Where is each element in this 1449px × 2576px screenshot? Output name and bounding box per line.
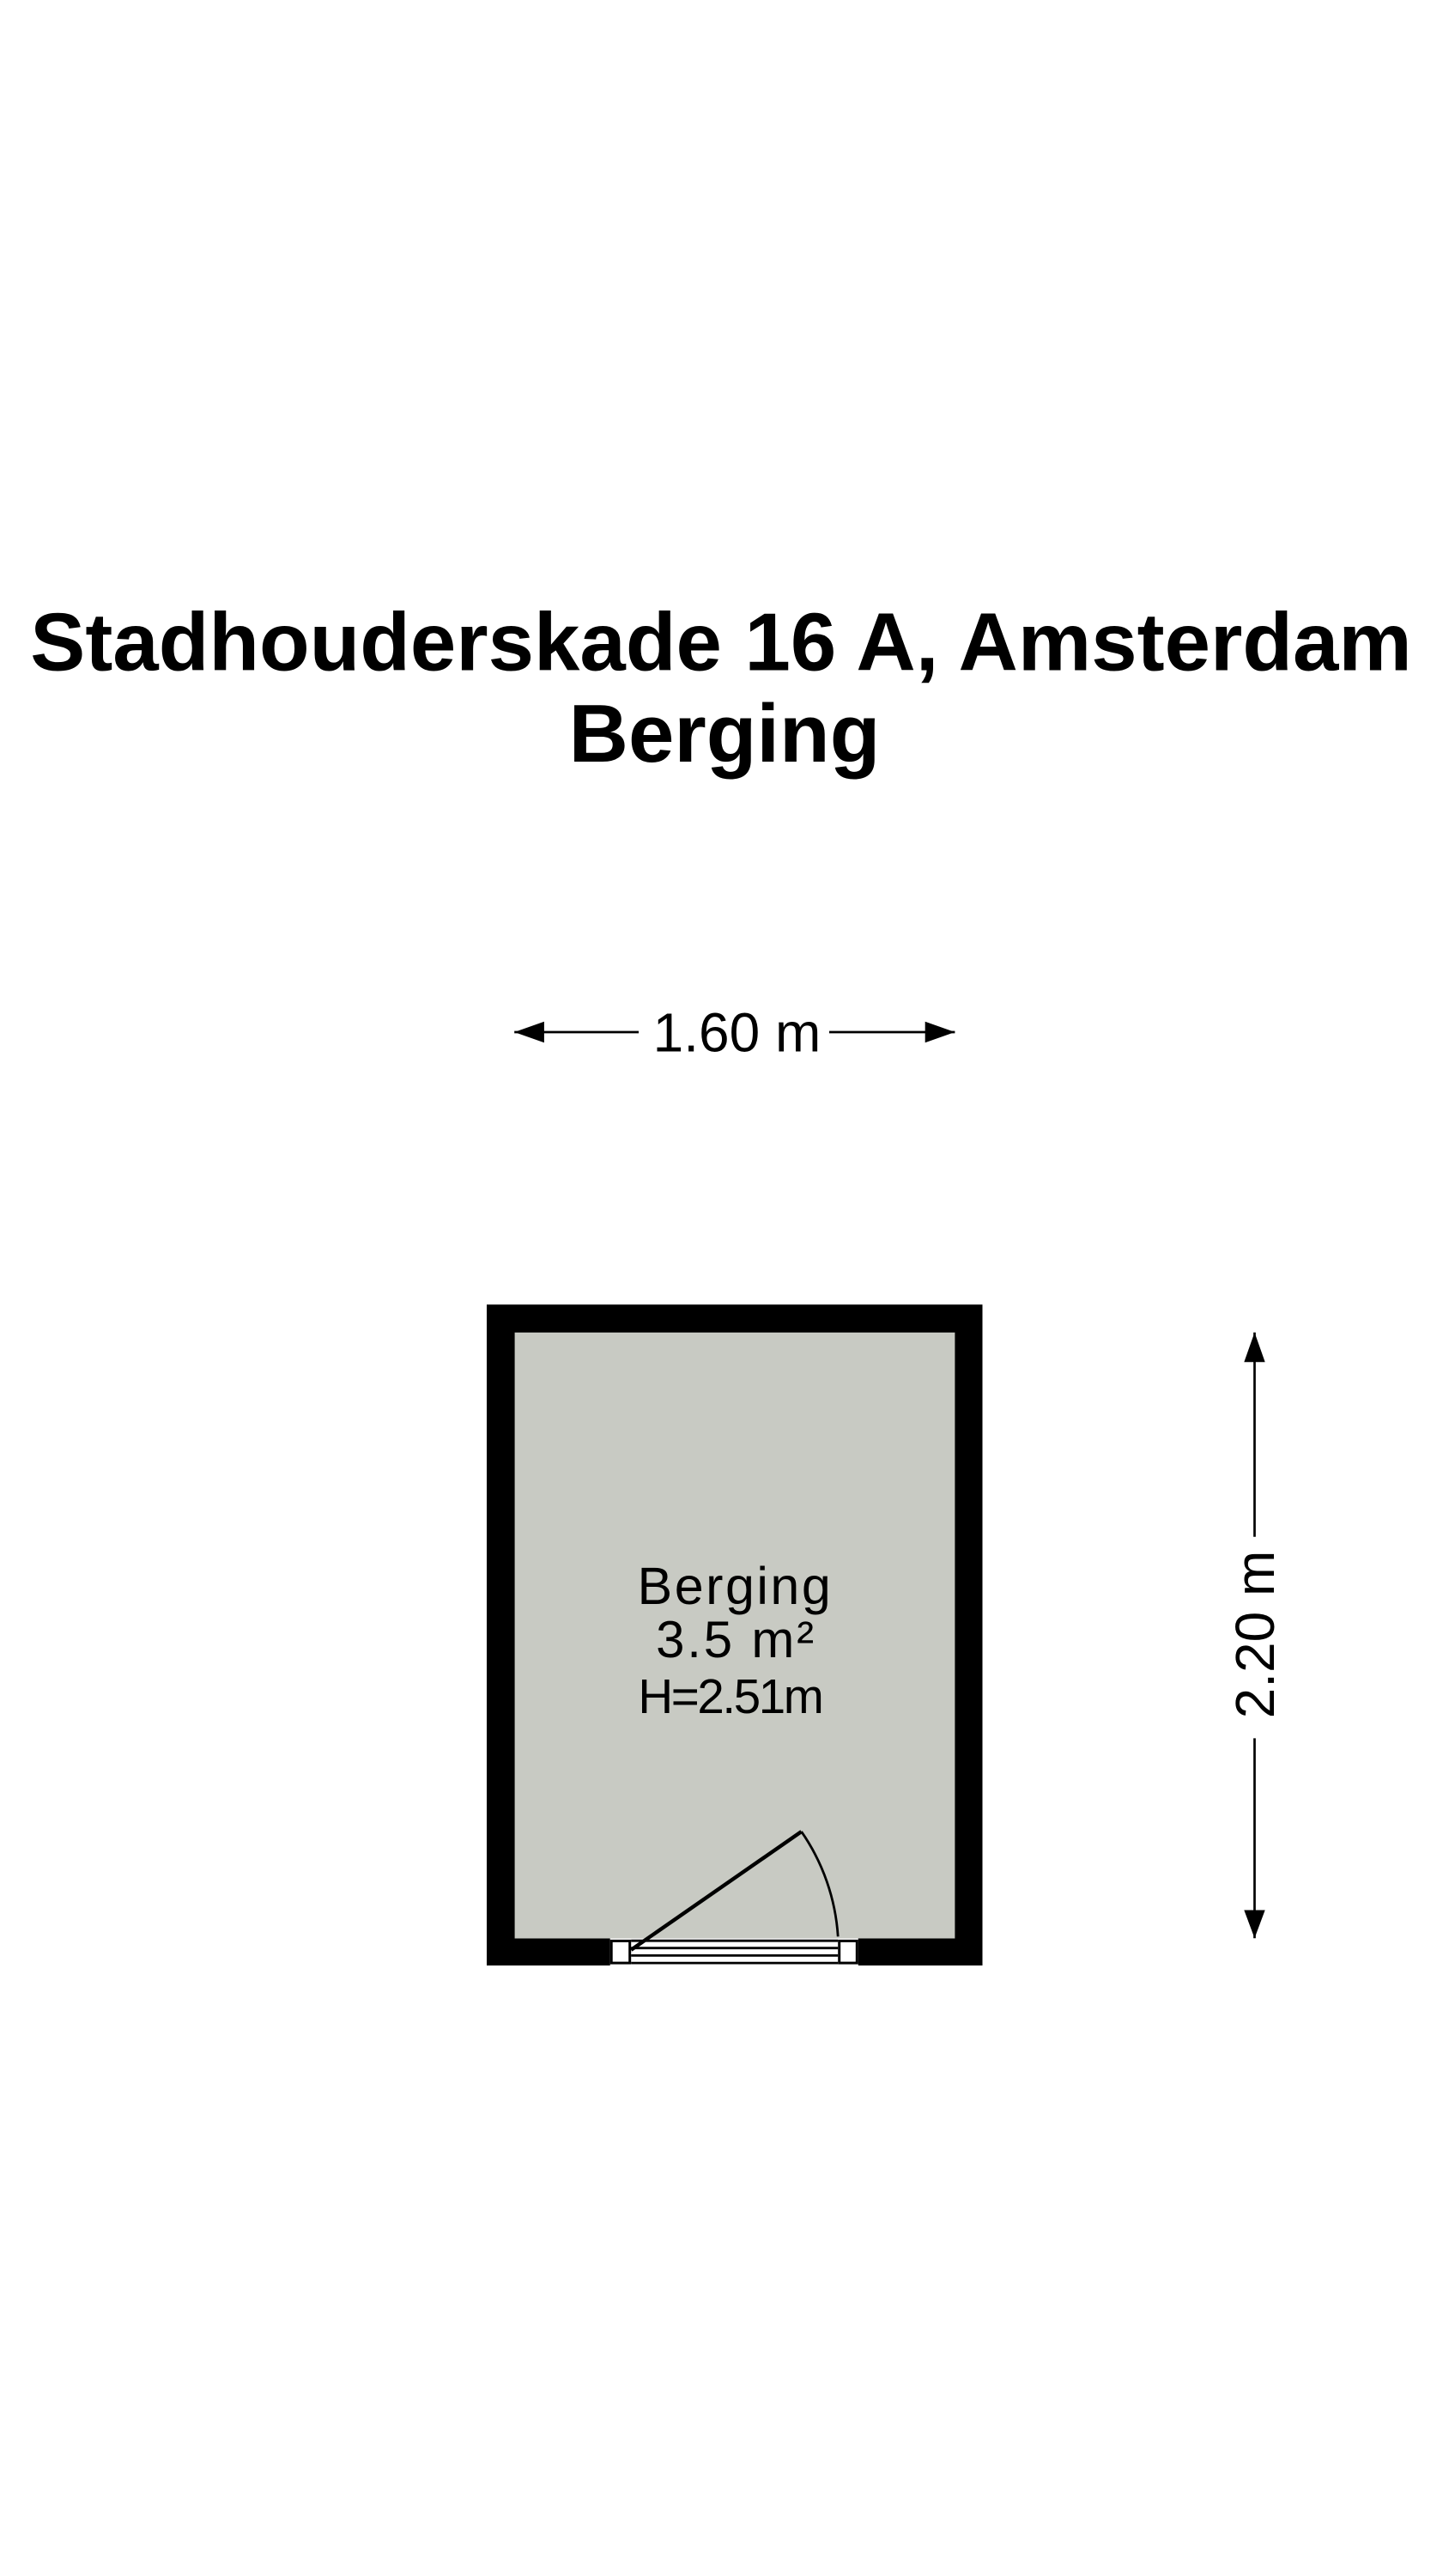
svg-text:1.60 m: 1.60 m <box>653 1002 822 1064</box>
svg-text:Berging: Berging <box>638 1557 834 1615</box>
svg-text:2.20 m: 2.20 m <box>1224 1551 1286 1719</box>
svg-text:Stadhouderskade 16 A, Amsterda: Stadhouderskade 16 A, Amsterdam <box>30 597 1411 689</box>
svg-text:3.5 m²: 3.5 m² <box>656 1611 816 1668</box>
svg-text:Berging: Berging <box>569 688 881 780</box>
svg-text:H=2.51m: H=2.51m <box>638 1669 822 1723</box>
